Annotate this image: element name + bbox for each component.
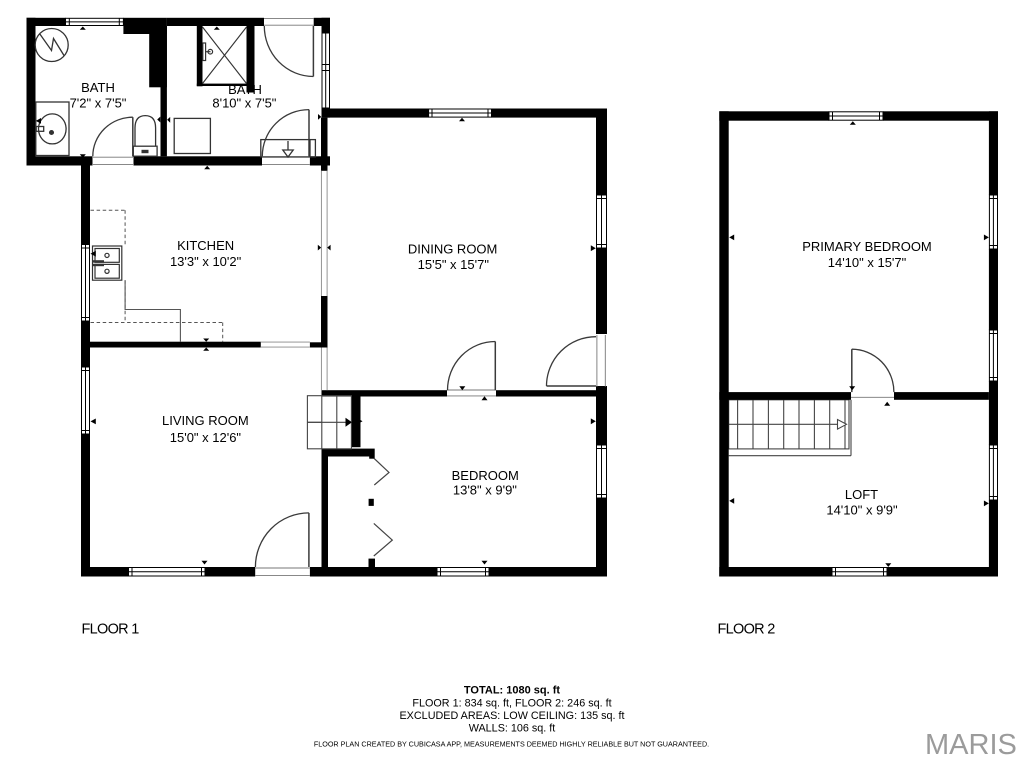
svg-text:DINING ROOM: DINING ROOM: [408, 241, 498, 256]
svg-text:15'5" x 15'7": 15'5" x 15'7": [418, 257, 490, 272]
svg-text:FLOOR 1: FLOOR 1: [82, 622, 140, 638]
svg-text:WALLS: 106 sq. ft: WALLS: 106 sq. ft: [469, 723, 556, 735]
svg-text:13'8" x 9'9": 13'8" x 9'9": [453, 483, 517, 498]
svg-text:8'10" x 7'5": 8'10" x 7'5": [212, 96, 276, 111]
svg-text:PRIMARY BEDROOM: PRIMARY BEDROOM: [802, 239, 932, 254]
svg-text:BATH: BATH: [81, 80, 115, 95]
svg-text:MARIS: MARIS: [925, 729, 1017, 761]
svg-text:TOTAL: 1080 sq. ft: TOTAL: 1080 sq. ft: [464, 685, 561, 697]
svg-text:EXCLUDED AREAS: LOW CEILING: 1: EXCLUDED AREAS: LOW CEILING: 135 sq. ft: [399, 710, 624, 722]
svg-text:FLOOR 2: FLOOR 2: [718, 622, 776, 638]
svg-text:LIVING ROOM: LIVING ROOM: [162, 413, 249, 428]
svg-text:FLOOR PLAN CREATED BY CUBICASA: FLOOR PLAN CREATED BY CUBICASA APP, MEAS…: [314, 740, 709, 749]
svg-text:KITCHEN: KITCHEN: [177, 238, 234, 253]
svg-text:7'2" x 7'5": 7'2" x 7'5": [70, 96, 127, 111]
svg-text:FLOOR 1: 834 sq. ft, FLOOR 2:: FLOOR 1: 834 sq. ft, FLOOR 2: 246 sq. ft: [412, 697, 611, 709]
svg-text:15'0" x 12'6": 15'0" x 12'6": [170, 430, 242, 445]
svg-text:13'3" x 10'2": 13'3" x 10'2": [170, 254, 242, 269]
svg-text:BEDROOM: BEDROOM: [452, 468, 519, 483]
svg-text:14'10" x 9'9": 14'10" x 9'9": [826, 503, 898, 518]
svg-text:14'10" x 15'7": 14'10" x 15'7": [828, 255, 907, 270]
svg-text:LOFT: LOFT: [845, 487, 878, 502]
